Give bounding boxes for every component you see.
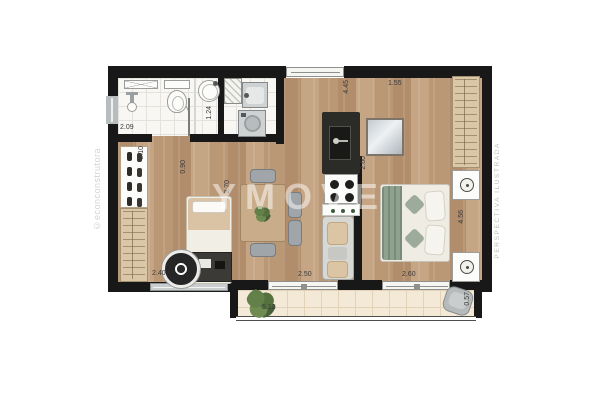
shoe-rack-icon <box>127 152 132 161</box>
bed-pillow-1 <box>424 190 446 221</box>
bathroom-window-line <box>111 98 113 122</box>
dim-balcony-depth: 0.57 <box>464 292 472 306</box>
nightstand-bottom <box>452 252 480 282</box>
desk-laptop <box>215 261 225 269</box>
lamp-icon-2 <box>460 260 474 274</box>
sliding-door-living-handle <box>301 284 307 289</box>
sliding-door-suite-handle <box>414 284 420 289</box>
hanger-rail-icon-2 <box>123 211 145 279</box>
bedroom2-window-line <box>153 287 225 288</box>
dim-hall-opening: 0.90 <box>180 160 188 174</box>
dim-suite-entry: 1.55 <box>388 80 402 88</box>
mirror-panel <box>366 118 404 156</box>
floor-plan-canvas: 2.09 1.24 3.10 0.90 2.70 2.40 4.45 1.55 … <box>0 0 600 400</box>
sofa-pillow-mid <box>328 247 347 260</box>
wall-bottom-b <box>338 280 382 290</box>
suite-wardrobe <box>452 76 480 168</box>
left-watermark: ©econconstrutora <box>92 148 102 231</box>
balcony-plant-icon <box>246 288 276 318</box>
washer-door-ring <box>244 115 261 132</box>
kitchen-island <box>322 112 360 174</box>
dim-suite-width: 2.60 <box>360 156 368 170</box>
dim-door-suite: 2.60 <box>402 271 416 279</box>
right-watermark: PERSPECTIVA ILUSTRADA <box>494 142 501 259</box>
double-bed <box>380 184 450 262</box>
washer-knob <box>241 113 246 117</box>
wall-laundry-right <box>276 66 284 144</box>
rug-icon <box>162 250 200 288</box>
lamp-icon <box>460 178 474 192</box>
dim-bedroom2-width: 2.40 <box>152 270 166 278</box>
dim-bathroom-width: 2.09 <box>120 124 134 132</box>
nightstand-top <box>452 170 480 200</box>
round-basin-inner <box>202 84 218 100</box>
bed-pillow-2 <box>424 224 446 255</box>
wall-right <box>482 66 492 292</box>
bedroom2-wardrobe <box>120 208 148 282</box>
deco-pillow-1 <box>404 194 425 215</box>
kitchen-sink-icon <box>329 126 351 160</box>
entry-door-line <box>291 72 340 73</box>
deco-pillow-2 <box>404 228 425 249</box>
dim-door-living: 2.50 <box>298 271 312 279</box>
entry-door <box>286 67 344 77</box>
bathroom-divider-glass <box>194 78 196 134</box>
wall-bathroom-bottom-right <box>190 134 284 142</box>
balcony-wall-left <box>230 290 238 318</box>
wall-bathroom-bottom-left <box>118 134 152 142</box>
hanger-rail-icon <box>455 79 477 165</box>
washer-icon <box>238 110 266 137</box>
balcony-wall-right <box>474 290 482 318</box>
desk-paper <box>199 259 211 268</box>
sink-base <box>127 102 137 112</box>
sofa-cushion-bottom <box>327 261 348 278</box>
balcony-railing <box>236 316 476 321</box>
toilet-bowl-inner <box>172 96 184 111</box>
basin-faucet-dot <box>213 81 218 86</box>
dim-balcony-width: 5.12 <box>262 304 276 312</box>
dim-suite-length: 4.56 <box>458 210 466 224</box>
bathroom-window <box>106 96 118 124</box>
laundry-tank-icon <box>242 82 268 108</box>
dim-bathroom-depth: 1.24 <box>206 106 214 120</box>
dim-closet-wall: 3.10 <box>138 146 146 160</box>
balcony-sliding-door-suite <box>382 281 450 290</box>
dining-chair-bottom <box>250 243 276 257</box>
sofa-cushion-top <box>327 222 348 245</box>
bathroom-shelf <box>124 80 158 89</box>
dining-chair-right-2 <box>288 220 302 246</box>
toilet-tank <box>164 80 190 89</box>
wall-top-left <box>108 66 286 78</box>
dim-living-length: 4.45 <box>343 80 351 94</box>
center-watermark: YMOVE <box>212 176 387 218</box>
toilet-icon <box>167 90 187 113</box>
bathroom-door-leaf <box>188 98 190 136</box>
kitchen-faucet-base <box>333 138 339 144</box>
duct-shaft <box>224 78 242 104</box>
balcony-sliding-door-living <box>268 281 338 290</box>
laundry-tank-faucet <box>244 93 249 98</box>
sofa <box>322 216 354 280</box>
